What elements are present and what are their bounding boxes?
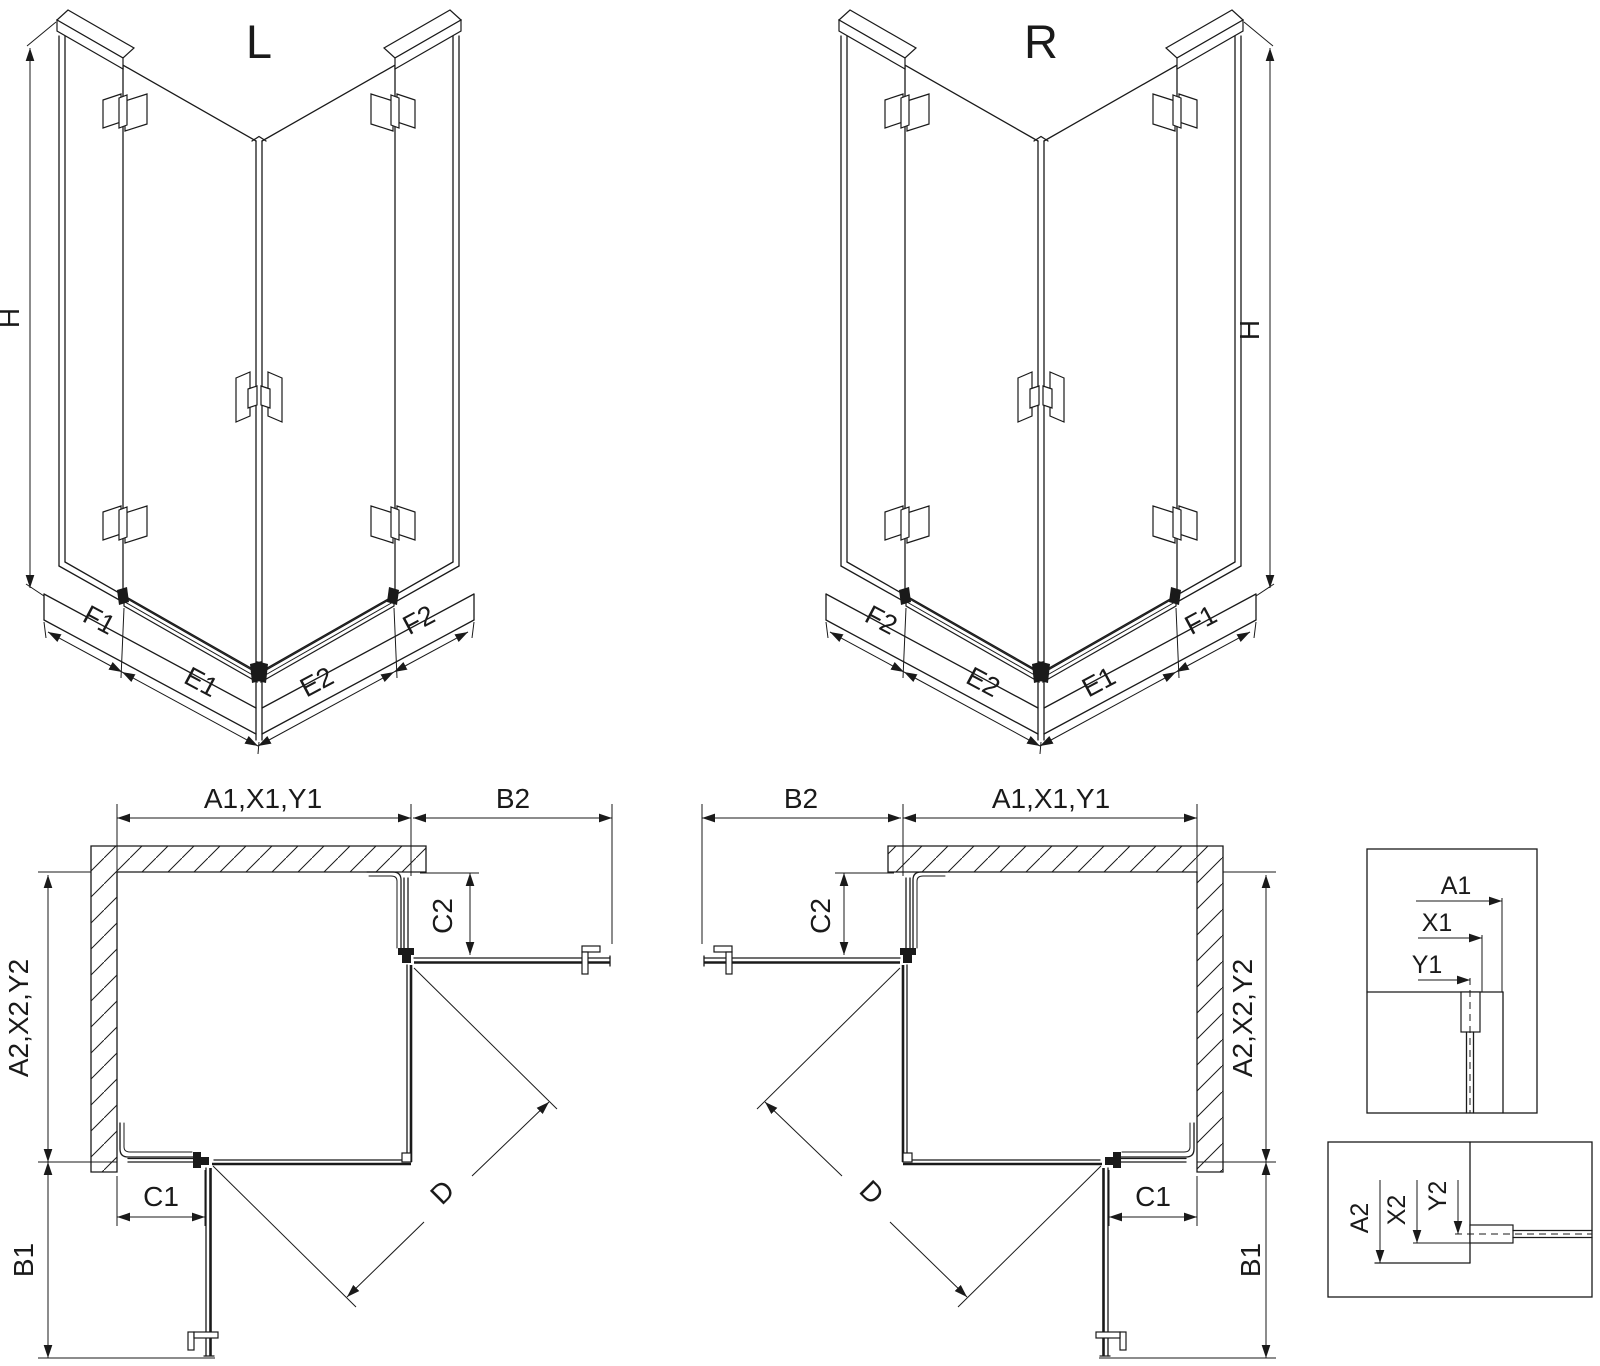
dimension-label: X1 — [1422, 909, 1453, 937]
dimension-label: C1 — [143, 1181, 179, 1212]
iso-view-left: L H F1 E1 E2 F2 — [0, 10, 474, 754]
dimension-label: F2 — [860, 599, 902, 640]
dimension-label: A2,X2,Y2 — [1227, 959, 1258, 1077]
dimension-label: A1,X1,Y1 — [204, 783, 322, 814]
plan-view-left: A1,X1,Y1 B2 C2 A2,X2,Y2 C1 B1 D — [3, 783, 612, 1358]
dimension-label-height: H — [1234, 320, 1265, 340]
dimension-label: Y1 — [1412, 951, 1443, 979]
view-label: L — [246, 15, 272, 68]
dimension-label: B1 — [8, 1243, 39, 1277]
dimension-label: A1,X1,Y1 — [992, 783, 1110, 814]
dimension-label: Y2 — [1424, 1181, 1452, 1212]
dimension-label: A2,X2,Y2 — [3, 959, 34, 1077]
detail-anchoring-bottom: A2 X2 Y2 — [1328, 1142, 1592, 1297]
plan-view-right: B2 A1,X1,Y1 C2 A2,X2,Y2 C1 B1 D — [702, 783, 1276, 1358]
dimension-label: X2 — [1383, 1195, 1411, 1226]
dimension-label: B1 — [1235, 1243, 1266, 1277]
wall-section — [91, 846, 426, 1172]
dimension-label: A2 — [1346, 1203, 1374, 1234]
iso-view-right: R H F2 E2 E1 F1 — [826, 10, 1274, 754]
dimension-label: C2 — [805, 898, 836, 934]
dimension-label: F2 — [398, 599, 440, 640]
wall-section — [888, 846, 1223, 1172]
detail-anchoring-top: A1 X1 Y1 — [1367, 849, 1537, 1113]
dimension-label: C2 — [427, 898, 458, 934]
dimension-label: B2 — [784, 783, 818, 814]
dimension-label-height: H — [0, 308, 25, 328]
dimension-label: D — [424, 1174, 460, 1210]
dimension-label: A1 — [1441, 872, 1472, 900]
dimension-label: C1 — [1135, 1181, 1171, 1212]
dimension-label: F1 — [78, 599, 120, 640]
dimension-label: B2 — [496, 783, 530, 814]
dimension-label: D — [854, 1174, 890, 1210]
view-label: R — [1024, 15, 1058, 68]
shower-enclosure-technical-drawing: L H F1 E1 E2 F2 R H F2 E2 E1 F1 A1,X1,Y1… — [0, 0, 1600, 1366]
dimension-label: F1 — [1180, 599, 1222, 640]
